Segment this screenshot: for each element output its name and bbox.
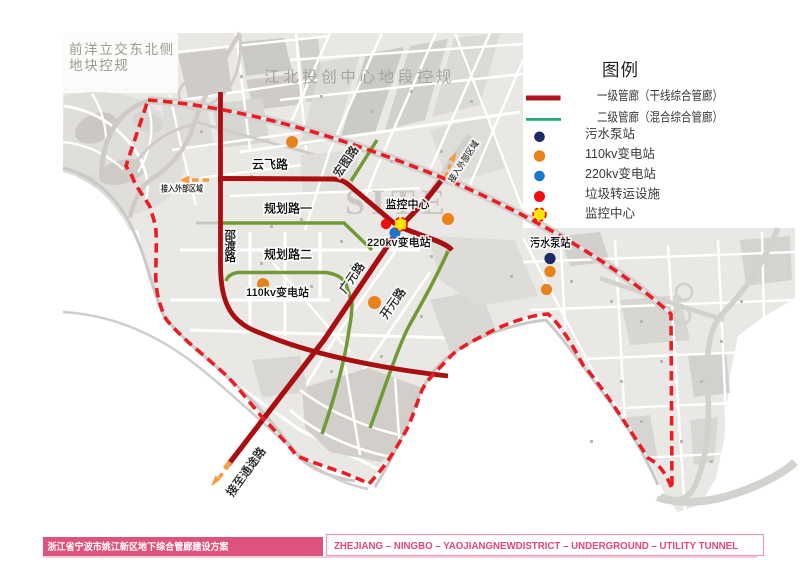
svg-text:地块控规: 地块控规 bbox=[69, 58, 129, 73]
svg-text:110kv变电站: 110kv变电站 bbox=[585, 146, 655, 161]
svg-text:规划路二: 规划路二 bbox=[264, 247, 312, 262]
svg-text:江北投创中心地段控规: 江北投创中心地段控规 bbox=[264, 68, 455, 86]
svg-text:监控中心: 监控中心 bbox=[386, 197, 430, 211]
svg-text:浙江省宁波市姚江新区地下综合管廊建设方案: 浙江省宁波市姚江新区地下综合管廊建设方案 bbox=[48, 541, 229, 553]
svg-text:邵渡路: 邵渡路 bbox=[224, 229, 237, 264]
svg-text:云飞路: 云飞路 bbox=[252, 157, 289, 172]
svg-text:接入外部区域: 接入外部区域 bbox=[161, 184, 203, 194]
svg-text:垃圾转运设施: 垃圾转运设施 bbox=[585, 186, 661, 201]
svg-text:220kv变电站: 220kv变电站 bbox=[367, 235, 431, 249]
svg-text:110kv变电站: 110kv变电站 bbox=[246, 285, 309, 299]
svg-text:二级管廊（混合综合管廊）: 二级管廊（混合综合管廊） bbox=[597, 110, 723, 125]
svg-text:污水泵站: 污水泵站 bbox=[585, 127, 635, 141]
svg-text:220kv变电站: 220kv变电站 bbox=[585, 166, 656, 181]
svg-text:图例: 图例 bbox=[602, 60, 639, 80]
svg-text:ZHEJIANG – NINGBO – YAOJIANGNE: ZHEJIANG – NINGBO – YAOJIANGNEWDISTRICT … bbox=[334, 540, 739, 552]
svg-text:规划路一: 规划路一 bbox=[264, 201, 312, 216]
svg-text:污水泵站: 污水泵站 bbox=[530, 236, 571, 250]
svg-text:监控中心: 监控中心 bbox=[585, 206, 636, 221]
svg-text:一级管廊（干线综合管廊）: 一级管廊（干线综合管廊） bbox=[597, 88, 723, 103]
svg-text:前洋立交东北侧: 前洋立交东北侧 bbox=[69, 41, 175, 57]
